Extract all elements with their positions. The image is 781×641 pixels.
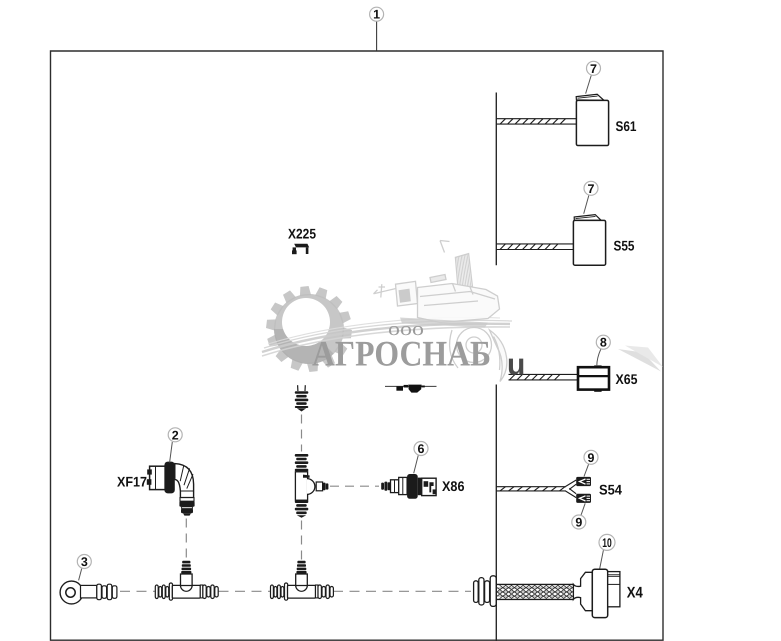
svg-text:u: u [507,349,525,382]
svg-text:X4: X4 [627,584,643,601]
svg-text:S55: S55 [614,237,635,253]
svg-text:X86: X86 [442,478,465,494]
svg-text:1: 1 [373,8,380,22]
svg-text:S54: S54 [599,481,622,497]
svg-text:8: 8 [600,336,607,350]
svg-text:3: 3 [81,555,88,569]
svg-text:X65: X65 [616,371,638,387]
svg-text:7: 7 [588,182,595,196]
svg-text:9: 9 [575,516,582,530]
svg-text:10: 10 [602,536,612,550]
svg-text:7: 7 [590,62,597,76]
svg-text:9: 9 [588,451,595,465]
svg-text:XF17: XF17 [117,473,147,489]
svg-text:АГРОСНАБ: АГРОСНАБ [312,334,491,374]
svg-text:6: 6 [418,442,425,456]
svg-text:S61: S61 [616,118,637,134]
svg-text:2: 2 [172,428,179,442]
svg-text:X225: X225 [288,225,316,241]
